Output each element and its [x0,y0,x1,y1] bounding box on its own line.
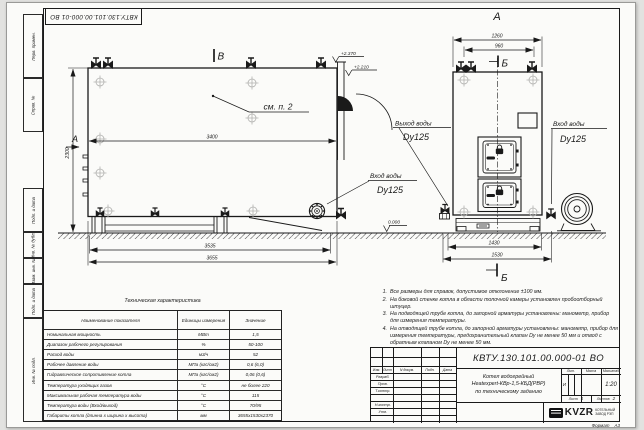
tech-table: Наименование показателя Единицы измерени… [43,310,282,421]
table-row: Габариты котла (длинна х ширина х высота… [44,410,281,420]
margin-label: Подп. и дата [31,197,36,224]
note-text: На отводящей трубе котла, до запорной ар… [390,326,618,346]
margin-box-sprav-n: Справ. № [23,78,43,132]
row-utv: Утв. [371,408,393,415]
sheet-cell: Лист1 [561,395,591,402]
fan-scroll-icon [338,96,353,111]
tech-characteristics: Техническая характеристика Наименование … [43,298,282,308]
col-list: Лист [382,366,393,373]
dim-1260: 1260 [491,34,502,40]
side-view [440,58,602,232]
door-swing-arc [356,94,392,130]
front-view [83,58,392,233]
note-item: 1.Все размеры для справок, допустимое от… [378,289,618,296]
table-row: Температура воды (Вход/выход)°С70/95 [44,400,281,410]
inlet-title: Вход воды [553,120,585,128]
margin-box-perv-primen: Перв. примен. [23,14,43,78]
callout-see-note-2: см. п. 2 [212,95,309,112]
fan-blower [557,194,601,231]
front-inlet-label: Вход воды Dy125 [327,172,417,204]
lit-value: И [561,374,568,395]
col-doc: N докум. [393,366,421,373]
margin-box-inv-dubl: Инв. № дубл. [23,232,43,258]
elev-2210: +2.210 [354,65,369,71]
inlet-valve-icon [547,209,556,219]
dim-960: 960 [495,44,504,50]
note-text: На боковой стенке котла в области топочн… [390,297,618,311]
col-sign: Подп. [421,366,439,373]
door-handle [487,157,496,160]
outlet-size: Dy125 [403,132,430,142]
outlet-flange-assembly [440,205,450,220]
table-row: Максимальная рабочая температура воды°С1… [44,390,281,400]
note-item: 2.На боковой стенке котла в области топо… [378,297,618,311]
drawing-sheet-page: { "sheet": { "designation_stamp": "КВТУ.… [0,0,644,430]
col-header-unit: Единицы измерения [178,311,230,329]
furnace-door-lower [478,179,521,212]
sheets-cell: Листов2 [591,395,621,402]
zero-elevation-mark: 0.000 [384,220,408,232]
col-date: Дата [439,366,456,373]
margin-label: Подп. и дата [31,288,36,315]
engineering-drawing: 3400 2300 3535 3655 В А см. п. 2 +2.370 … [43,8,620,296]
note-item: 4.На отводящей трубе котла, до запорной … [378,326,618,346]
dim-2300: 2300 [65,147,71,159]
elev-0000: 0.000 [388,220,400,226]
table-row: Номинальная мощностьМВт1,5 [44,329,281,339]
row-tkontr: Т.контр. [371,387,393,394]
tech-table-title: Техническая характеристика [43,298,282,308]
row-razrab: Разраб. [371,373,393,380]
side-inlet-label: Вход воды Dy125 [551,120,607,204]
note-item: 3.На подводящей трубе котла, до запорной… [378,311,618,325]
side-annotations: А 1260 960 1430 1530 Б Б 0.000 [384,11,608,284]
inlet-size: Dy125 [377,185,404,195]
boiler-body-front [88,68,337,217]
tech-table-header: Наименование показателя Единицы измерени… [44,311,281,329]
ground-line [58,233,606,239]
title-block: Изм. Лист N докум. Подп. Дата Разраб. Пр… [370,347,620,422]
inlet-size: Dy125 [560,134,587,144]
table-row: Диапазон рабочего регулирования%50-100 [44,339,281,349]
col-header-value: Значение [230,311,281,329]
table-row: Температура уходящих газов°Сне более 220 [44,380,281,390]
elev-2370: +2.370 [341,51,356,57]
kvzr-logo-text: KVZR [565,407,593,418]
note-text: Все размеры для справок, допустимое откл… [390,289,618,296]
section-b-label: Б [502,59,509,70]
note-number: 1. [378,289,387,296]
note-number: 4. [378,326,387,346]
sight-hatch [518,113,537,128]
table-row: Гидравлическое сопротивление котлаМПа (к… [44,369,281,379]
margin-box-podp-data-1: Подп. и дата [23,188,43,232]
dim-3535: 3535 [204,244,215,250]
dim-3400: 3400 [206,135,217,141]
mass-label: Масса [581,368,601,374]
water-inlet-flange [309,203,324,218]
ladder-rungs [83,155,88,196]
support-leg [214,217,227,234]
top-valve-icons [457,62,537,72]
document-designation: КВТУ.130.101.00.000-01 ВО [456,348,621,368]
section-b-label: Б [501,273,508,284]
note-text: На подводящей трубе котла, до запорной а… [390,311,618,325]
col-header-name: Наименование показателя [44,311,178,329]
top-valve-icons [92,58,326,68]
kvzr-logo-icon [549,408,563,418]
margin-label: Взам. инв. № [31,258,36,285]
lock-icon [496,145,502,154]
support-leg [92,217,105,234]
crosshair-markers [458,74,540,219]
inlet-title: Вход воды [370,172,402,180]
flue-pipe [335,62,392,160]
company-cell: KVZR КОТЕЛЬНЫЙЗАВОД РЭП [543,402,621,423]
section-b-label: В [218,52,225,63]
door-handle [487,194,496,197]
scale-value: 1:20 [601,374,621,395]
base-rails [105,225,214,231]
crosshair-markers [94,76,260,218]
dim-1530: 1530 [491,253,502,259]
note-number: 3. [378,311,387,325]
dim-1430: 1430 [488,241,499,247]
row-prov: Пров. [371,380,393,387]
base-slope [249,218,322,231]
margin-label: Инв. № подл. [31,357,36,384]
table-row: Рабочее давление водыМПа (кгс/см2)0,6 (6… [44,359,281,369]
side-view-title: А [492,11,500,23]
section-b-bottom: Б [486,264,508,285]
margin-box-vzam-inv: Взам. инв. № [23,258,43,284]
callout-text: см. п. 2 [264,102,293,112]
col-izm: Изм. [371,366,382,373]
outlet-title: Выход воды [395,120,432,128]
note-number: 2. [378,297,387,311]
table-row: Расход водым3/ч52 [44,349,281,359]
notes-block: 1.Все размеры для справок, допустимое от… [378,289,618,346]
margin-box-podp-data-2: Подп. и дата [23,284,43,318]
side-base-frame [456,219,540,232]
section-b-top: Б [489,56,509,70]
margin-label: Инв. № дубл. [31,232,36,258]
product-name: Котел водогрейный Heatexpert-КВр-1,5-КБД… [456,368,561,402]
furnace-door-upper [478,137,521,177]
lock-icon [496,186,502,195]
format-note: Формат А3 [540,421,620,429]
margin-box-inv-podl: Инв. № подл. [23,318,43,422]
view-a-label: А [71,134,78,144]
elevation-marks: +2.370 +2.210 [333,51,378,76]
margin-label: Справ. № [31,95,36,115]
row-nkontr: Н.контр. [371,401,393,408]
margin-label: Перв. примен. [31,32,36,61]
dim-3655: 3655 [206,256,217,262]
